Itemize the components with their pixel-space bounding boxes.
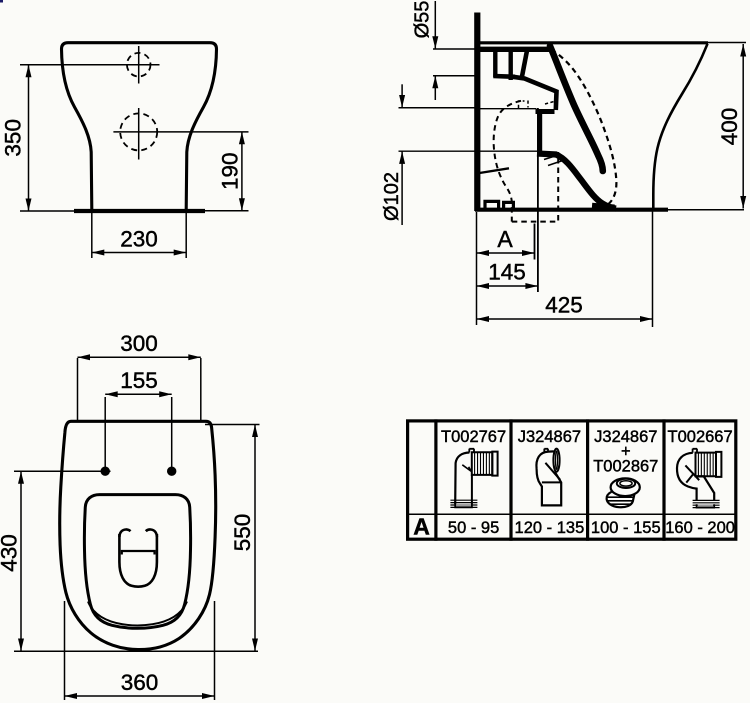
svg-text:145: 145 — [488, 260, 526, 285]
svg-text:T002867: T002867 — [593, 458, 658, 476]
svg-text:190: 190 — [217, 152, 242, 190]
svg-text:230: 230 — [120, 227, 158, 252]
svg-text:350: 350 — [1, 119, 26, 157]
svg-text:100 - 155: 100 - 155 — [591, 519, 661, 537]
svg-text:A: A — [497, 226, 513, 252]
svg-text:425: 425 — [545, 293, 583, 318]
svg-text:50 - 95: 50 - 95 — [448, 519, 499, 537]
svg-text:Ø102: Ø102 — [381, 172, 403, 221]
svg-text:T002667: T002667 — [668, 428, 733, 446]
svg-text:550: 550 — [230, 514, 255, 552]
svg-text:400: 400 — [717, 108, 742, 146]
svg-text:120 - 135: 120 - 135 — [515, 519, 585, 537]
svg-text:155: 155 — [120, 368, 158, 393]
svg-text:Ø55: Ø55 — [412, 1, 434, 39]
svg-text:430: 430 — [0, 534, 22, 572]
svg-text:300: 300 — [120, 331, 158, 356]
svg-text:360: 360 — [121, 670, 159, 695]
svg-text:J324867: J324867 — [518, 428, 581, 446]
svg-text:A: A — [413, 514, 430, 540]
svg-text:160 - 200: 160 - 200 — [665, 519, 735, 537]
svg-text:T002767: T002767 — [441, 428, 506, 446]
